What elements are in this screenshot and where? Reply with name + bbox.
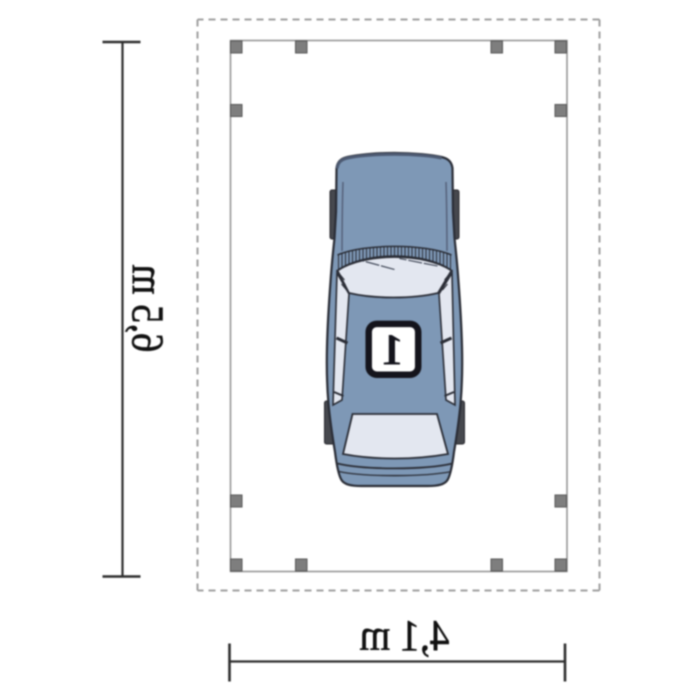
svg-text:4,1 m: 4,1 m	[360, 611, 450, 660]
svg-text:6,5 m: 6,5 m	[123, 264, 174, 352]
svg-text:1: 1	[382, 325, 404, 374]
